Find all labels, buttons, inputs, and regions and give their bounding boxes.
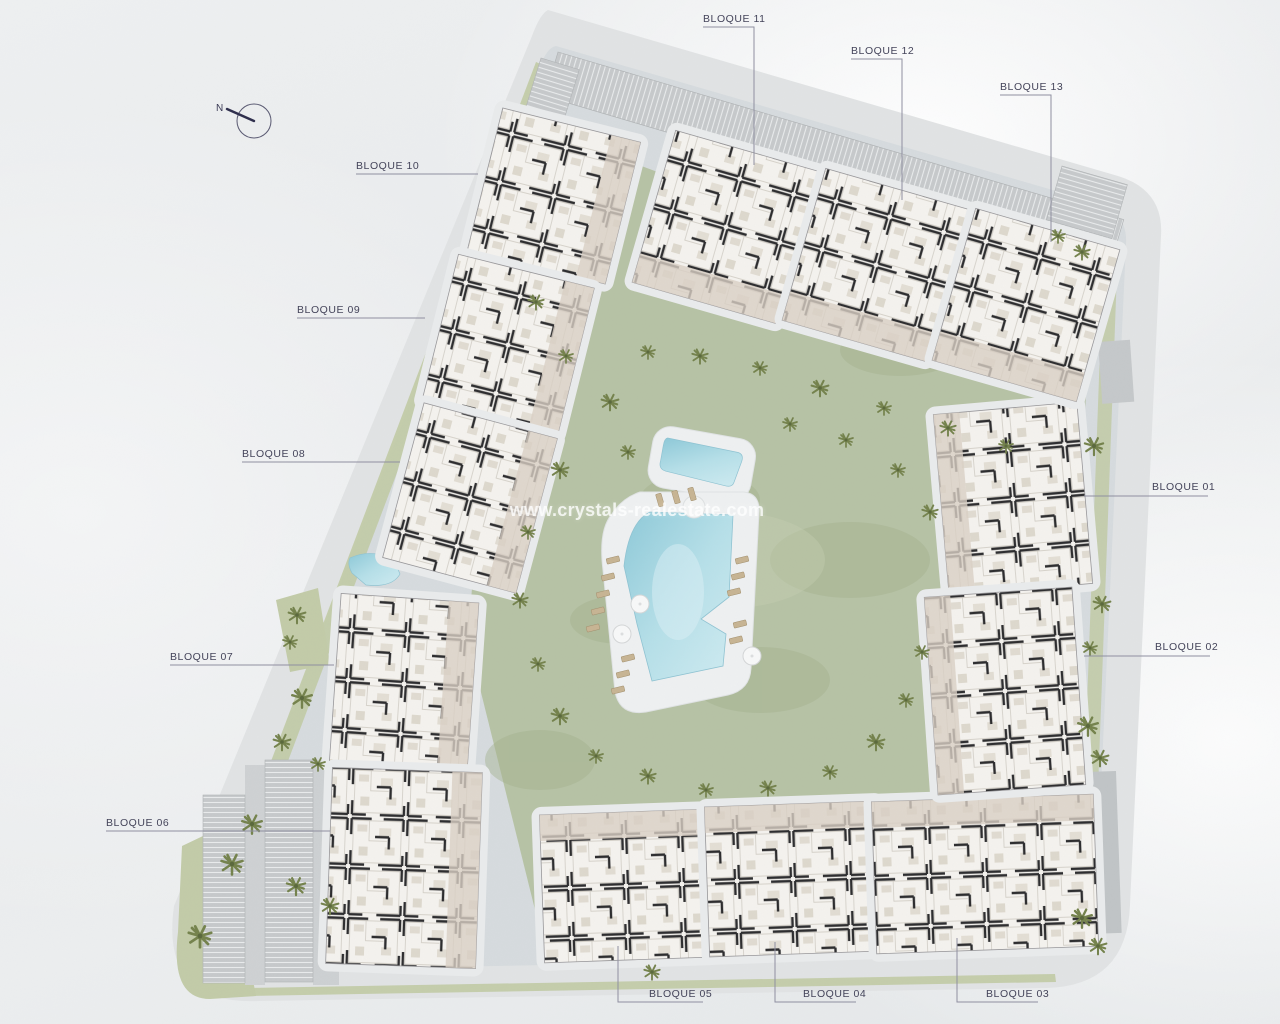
label-bloque-08: BLOQUE 08 (242, 448, 305, 460)
label-bloque-01: BLOQUE 01 (1152, 481, 1215, 493)
label-bloque-10: BLOQUE 10 (356, 160, 419, 172)
label-bloque-04: BLOQUE 04 (803, 988, 866, 1000)
label-bloque-13: BLOQUE 13 (1000, 81, 1063, 93)
label-bloque-03: BLOQUE 03 (986, 988, 1049, 1000)
compass-north-label: N (216, 103, 224, 114)
label-bloque-11: BLOQUE 11 (703, 13, 766, 25)
label-bloque-02: BLOQUE 02 (1155, 641, 1218, 653)
label-bloque-12: BLOQUE 12 (851, 45, 914, 57)
watermark: www.crystals-realestate.com (502, 500, 772, 521)
label-bloque-07: BLOQUE 07 (170, 651, 233, 663)
label-bloque-05: BLOQUE 05 (649, 988, 712, 1000)
label-bloque-06: BLOQUE 06 (106, 817, 169, 829)
label-bloque-09: BLOQUE 09 (297, 304, 360, 316)
